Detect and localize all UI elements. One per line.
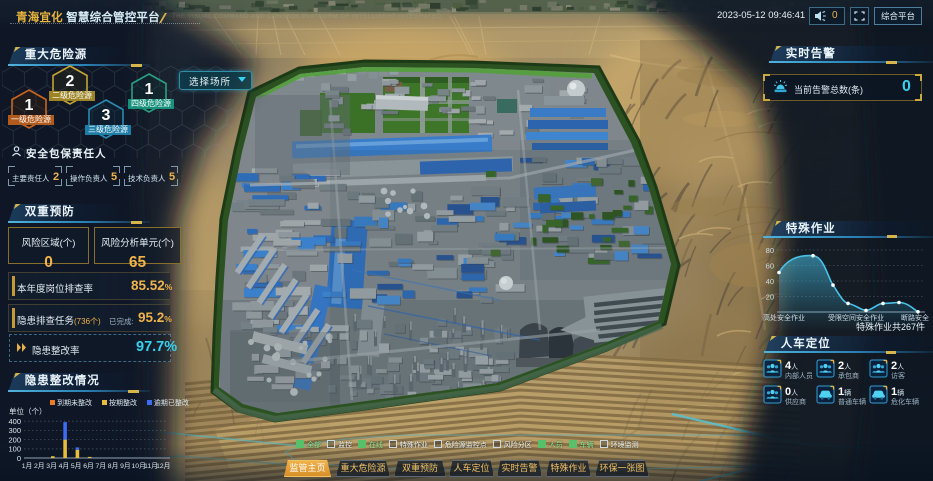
svg-text:2人: 2人 [891, 360, 904, 372]
svg-text:承包商: 承包商 [838, 371, 859, 380]
svg-text:3月: 3月 [46, 462, 57, 470]
svg-text:高处安全作业: 高处安全作业 [763, 313, 805, 322]
svg-text:4人: 4人 [785, 360, 798, 372]
svg-text:9月: 9月 [120, 462, 131, 470]
svg-text:普通车辆: 普通车辆 [838, 397, 866, 406]
svg-text:1月: 1月 [22, 462, 33, 470]
svg-text:0: 0 [17, 454, 21, 463]
svg-text:200: 200 [8, 435, 21, 444]
svg-text:100: 100 [8, 445, 21, 454]
svg-text:特殊作业共267件: 特殊作业共267件 [856, 321, 925, 332]
svg-text:危化车辆: 危化车辆 [891, 397, 919, 406]
svg-text:80: 80 [766, 246, 774, 255]
svg-text:400: 400 [8, 417, 21, 426]
svg-text:内部人员: 内部人员 [785, 371, 813, 380]
svg-text:0人: 0人 [785, 386, 798, 398]
svg-text:300: 300 [8, 426, 21, 435]
svg-text:供应商: 供应商 [785, 397, 806, 406]
svg-text:8月: 8月 [108, 462, 119, 470]
svg-text:12月: 12月 [156, 462, 170, 470]
svg-text:受限空间安全作业: 受限空间安全作业 [828, 313, 884, 322]
svg-text:60: 60 [766, 262, 774, 271]
svg-text:20: 20 [766, 293, 774, 302]
svg-text:5月: 5月 [71, 462, 82, 470]
svg-text:1辆: 1辆 [838, 386, 851, 398]
svg-text:4月: 4月 [59, 462, 70, 470]
svg-text:访客: 访客 [891, 371, 905, 380]
svg-text:7月: 7月 [96, 462, 107, 470]
svg-text:1辆: 1辆 [891, 386, 904, 398]
svg-text:2月: 2月 [34, 462, 45, 470]
svg-text:40: 40 [766, 277, 774, 286]
svg-text:断路安全: 断路安全 [901, 313, 929, 322]
svg-text:单位（个）: 单位（个） [9, 406, 47, 416]
svg-text:2人: 2人 [838, 360, 851, 372]
svg-text:6月: 6月 [83, 462, 94, 470]
